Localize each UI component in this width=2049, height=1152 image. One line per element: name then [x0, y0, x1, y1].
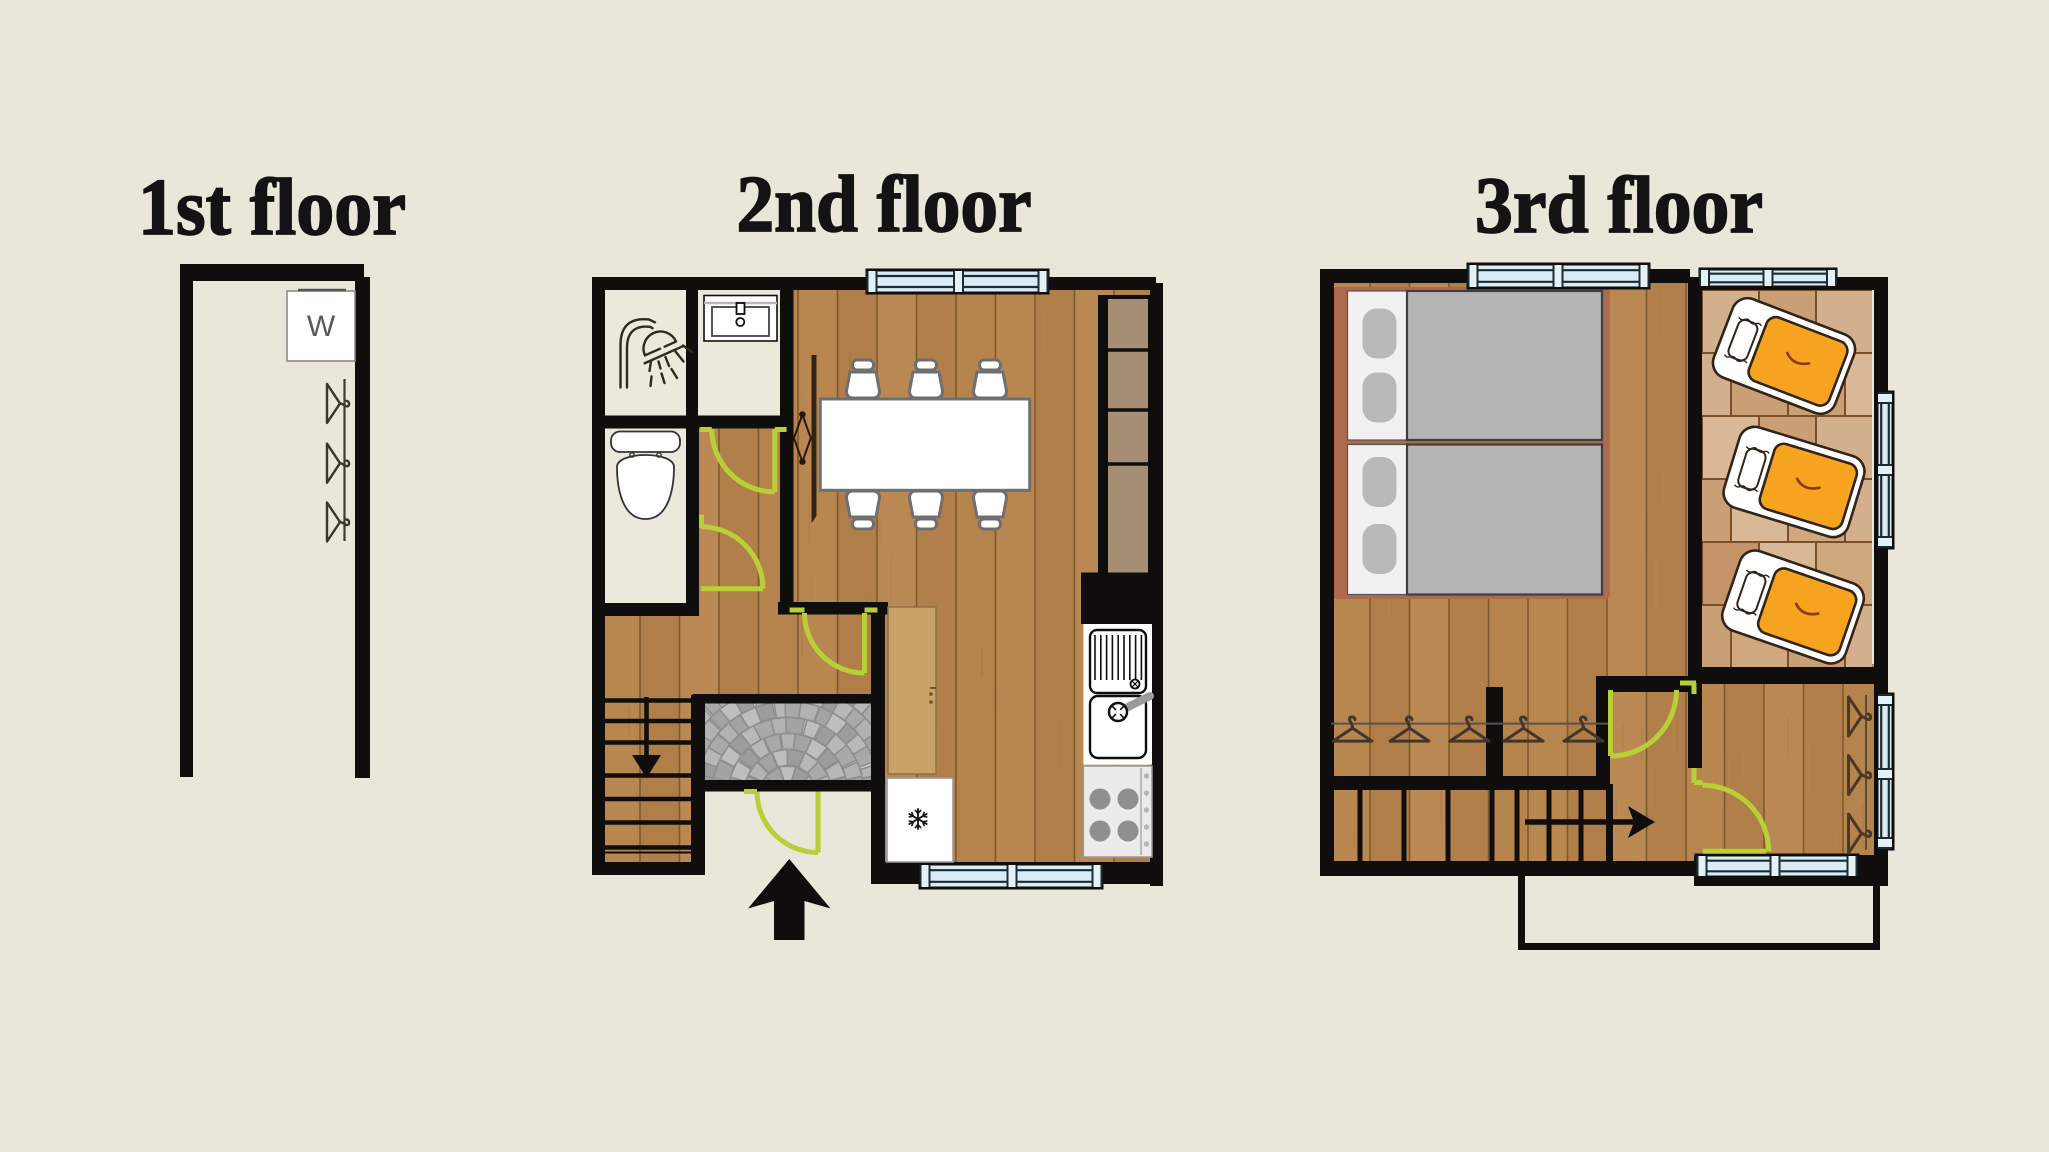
svg-text:3rd floor: 3rd floor — [1475, 162, 1763, 250]
svg-text:2nd floor: 2nd floor — [737, 161, 1032, 249]
svg-text:1st floor: 1st floor — [138, 164, 406, 252]
svg-text:W: W — [307, 310, 336, 343]
